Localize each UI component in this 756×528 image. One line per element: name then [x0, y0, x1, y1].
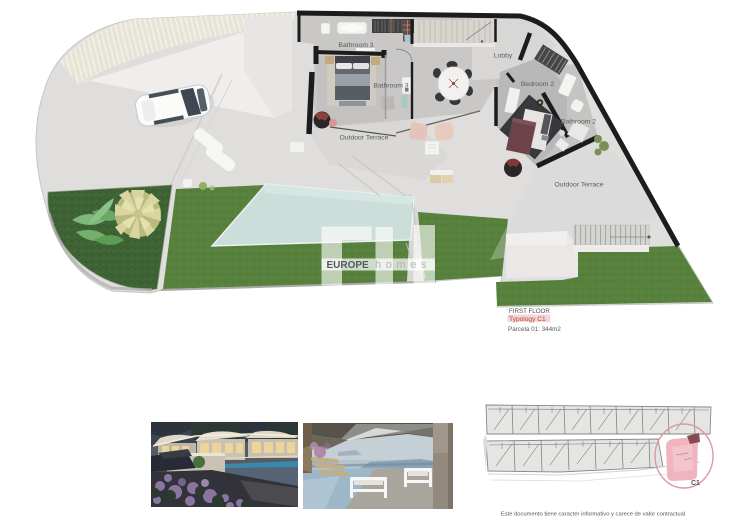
svg-text:Outdoor Terrace: Outdoor Terrace	[555, 182, 604, 189]
svg-text:homes: homes	[375, 259, 431, 271]
svg-text:Bedroom 2: Bedroom 2	[521, 81, 554, 88]
svg-text:C1: C1	[691, 480, 700, 487]
svg-text:Bathroom 2: Bathroom 2	[561, 119, 596, 126]
svg-text:Outdoor Terrace: Outdoor Terrace	[340, 135, 389, 142]
svg-text:FIRST FLOOR: FIRST FLOOR	[509, 308, 550, 315]
svg-text:Bathroom 3: Bathroom 3	[373, 83, 408, 90]
svg-text:Lobby: Lobby	[494, 53, 513, 60]
svg-text:Este documento tiene caracter: Este documento tiene caracter informativ…	[501, 512, 685, 518]
svg-text:Parcela 01: 344m2: Parcela 01: 344m2	[508, 326, 561, 333]
svg-text:Typology C1: Typology C1	[509, 316, 546, 323]
svg-text:Bathroom 3: Bathroom 3	[338, 42, 373, 49]
svg-text:EUROPE: EUROPE	[327, 260, 370, 271]
